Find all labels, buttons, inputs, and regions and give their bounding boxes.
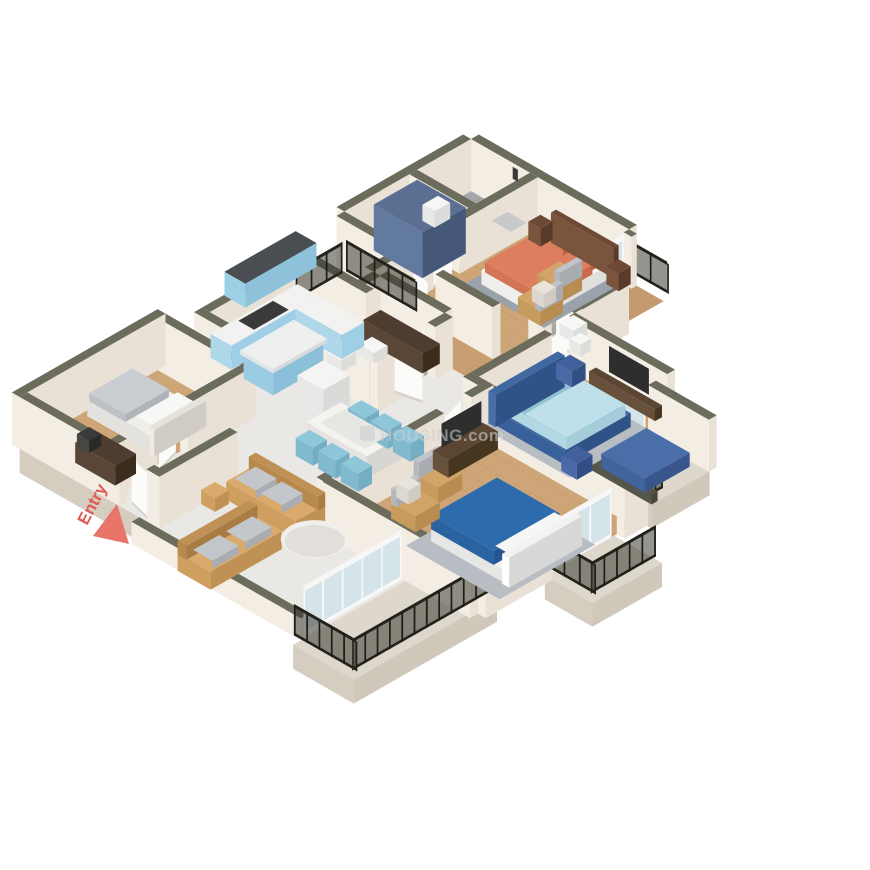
svg-text:HOUSING.com: HOUSING.com [380,426,505,445]
